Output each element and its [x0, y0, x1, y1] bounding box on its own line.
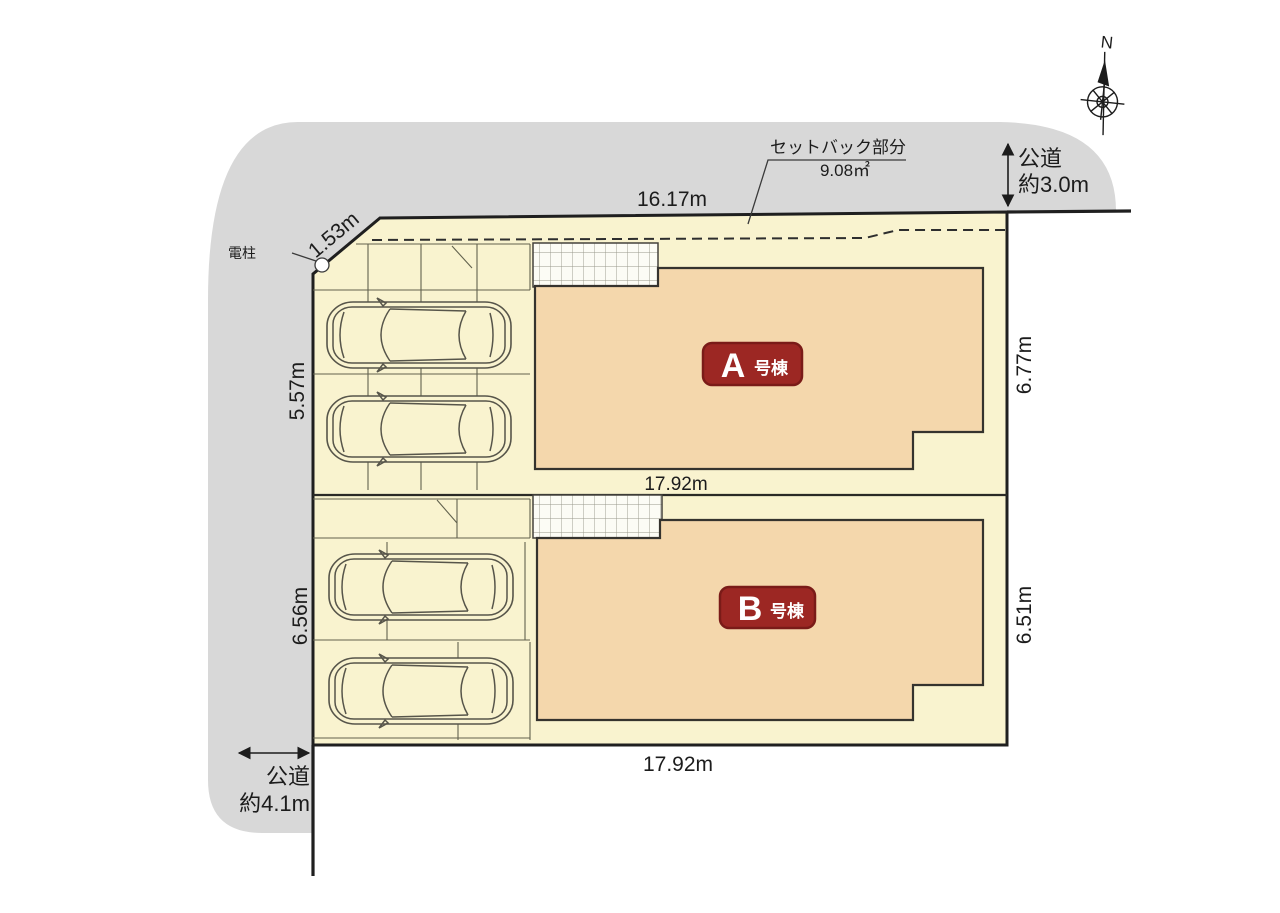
compass-north-label: N	[1100, 32, 1114, 52]
dimension-b-left: 6.56m	[289, 587, 312, 645]
road-left-width: 約4.1m	[239, 791, 310, 816]
car-icon	[329, 550, 513, 624]
site-plan: A 号棟 B 号棟 セットバック部分 9.08㎡ 公道 約3.0m 公道 約4.…	[0, 0, 1280, 913]
building-a-suffix: 号棟	[754, 358, 789, 378]
dimension-b-bottom: 17.92m	[643, 753, 713, 776]
entrance-hatch-b	[533, 495, 662, 538]
setback-area: 9.08㎡	[820, 161, 870, 180]
dimension-a-right: 6.77m	[1013, 336, 1036, 394]
road-edge-top-extension	[1007, 211, 1131, 212]
utility-pole-icon	[315, 258, 329, 272]
building-a-letter: A	[721, 347, 746, 385]
site-plan-drawing: A 号棟 B 号棟 セットバック部分 9.08㎡ 公道 約3.0m 公道 約4.…	[0, 0, 1280, 913]
building-a-badge: A 号棟	[703, 343, 802, 385]
building-b-suffix: 号棟	[770, 601, 805, 621]
building-b-letter: B	[738, 590, 763, 628]
dimension-a-left: 5.57m	[286, 362, 309, 420]
dimension-a-bottom: 17.92m	[644, 474, 707, 495]
road-left-name: 公道	[266, 764, 310, 789]
compass-north-icon: N	[1077, 31, 1131, 137]
entrance-hatch-a	[533, 243, 658, 287]
utility-pole-label: 電柱	[228, 245, 256, 261]
setback-label: セットバック部分	[770, 138, 906, 157]
road-top-width: 約3.0m	[1018, 172, 1089, 197]
road-top-name: 公道	[1018, 146, 1062, 171]
car-icon	[329, 654, 513, 728]
dimension-b-right: 6.51m	[1013, 586, 1036, 644]
dimension-top: 16.17m	[637, 188, 707, 211]
car-icon	[327, 392, 511, 466]
building-b-badge: B 号棟	[720, 587, 815, 628]
car-icon	[327, 298, 511, 372]
